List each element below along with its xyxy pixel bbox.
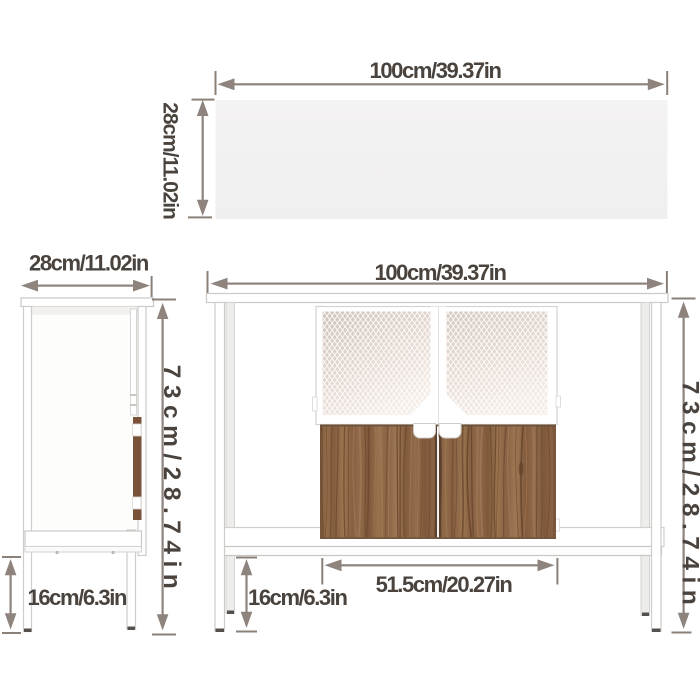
svg-text:51.5cm/20.27in: 51.5cm/20.27in — [376, 572, 513, 597]
svg-text:16cm/6.3in: 16cm/6.3in — [28, 585, 127, 610]
svg-text:28cm/11.02in: 28cm/11.02in — [29, 251, 149, 276]
svg-text:100cm/39.37in: 100cm/39.37in — [374, 260, 506, 285]
svg-text:16cm/6.3in: 16cm/6.3in — [248, 585, 347, 610]
svg-text:100cm/39.37in: 100cm/39.37in — [369, 58, 501, 83]
svg-text:73cm/28.74in: 73cm/28.74in — [158, 365, 185, 596]
svg-text:73cm/28.74in: 73cm/28.74in — [677, 381, 700, 612]
svg-text:28cm/11.02in: 28cm/11.02in — [159, 102, 182, 219]
